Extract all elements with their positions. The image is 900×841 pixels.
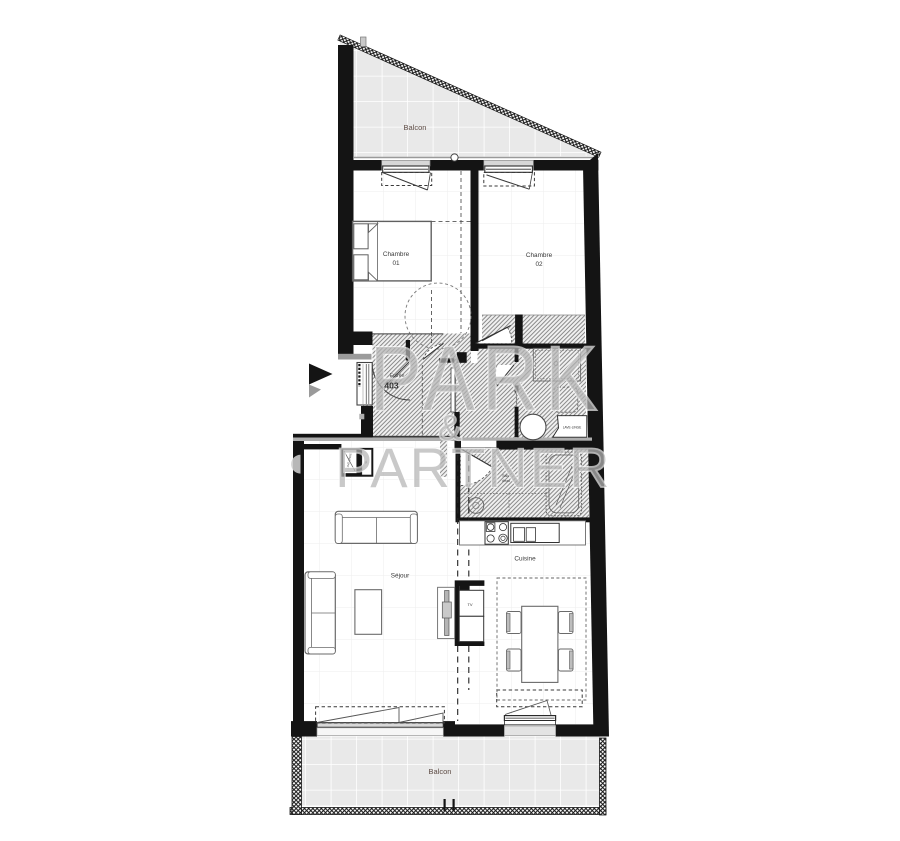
svg-text:Entrée: Entrée	[390, 373, 405, 379]
svg-text:Séjour: Séjour	[391, 573, 410, 580]
svg-text:Chambre: Chambre	[383, 251, 410, 258]
svg-text:PARTNERS: PARTNERS	[335, 436, 651, 499]
svg-text:Balcon: Balcon	[429, 767, 452, 776]
svg-text:Cuisine: Cuisine	[514, 556, 536, 563]
svg-text:Chambre: Chambre	[526, 252, 553, 259]
svg-text:02: 02	[535, 261, 543, 268]
svg-text:PARK: PARK	[370, 328, 605, 430]
svg-text:01: 01	[392, 260, 400, 267]
svg-text:Balcon: Balcon	[404, 123, 427, 132]
svg-text:TV: TV	[467, 602, 472, 607]
svg-text:403: 403	[384, 381, 398, 391]
